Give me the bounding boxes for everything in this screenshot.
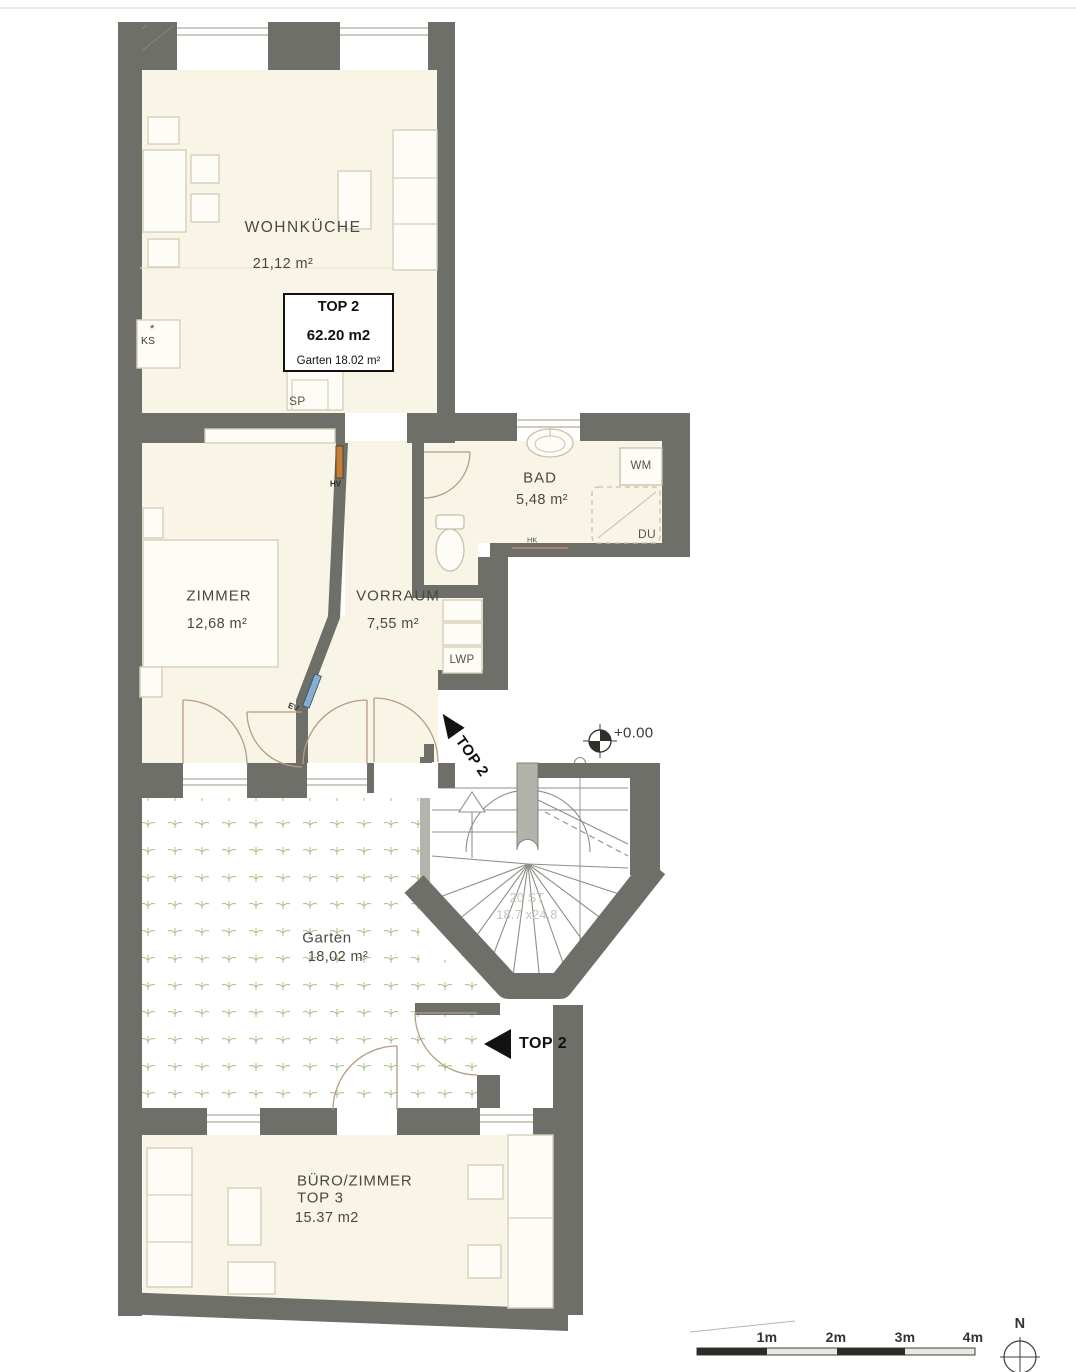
unit-box-area: 62.20 m2 xyxy=(287,327,390,344)
room-label-garten: Garten xyxy=(302,930,351,947)
compass-north-label: N xyxy=(1015,1316,1026,1332)
room-label-buero: BÜRO/ZIMMER xyxy=(297,1173,412,1190)
du-label: DU xyxy=(638,527,656,541)
floor-plan-canvas: WOHNKÜCHE 21,12 m² TOP 2 62.20 m2 Garten… xyxy=(0,0,1076,1372)
unit-box-title: TOP 2 xyxy=(287,299,390,315)
room-area-zimmer: 12,68 m² xyxy=(187,616,247,632)
room-area-garten: 18,02 m² xyxy=(308,949,368,965)
room-label-vorraum: VORRAUM xyxy=(356,588,440,605)
floor-plan-drawing xyxy=(0,0,1076,1372)
scale-label-2m: 2m xyxy=(826,1329,847,1345)
scale-label-4m: 4m xyxy=(963,1329,984,1345)
level-marker-label: +0.00 xyxy=(614,725,653,742)
hk-label: HK xyxy=(527,536,537,545)
entrance-arrow-lower-label: TOP 2 xyxy=(519,1035,567,1053)
unit-info-box: TOP 2 62.20 m2 Garten 18.02 m² xyxy=(283,293,394,372)
toilet xyxy=(436,529,464,571)
scale-bar xyxy=(697,1348,975,1355)
level-marker xyxy=(583,724,617,758)
room-area-wohnkueche: 21,12 m² xyxy=(253,256,313,272)
room-label-wohnkueche: WOHNKÜCHE xyxy=(245,219,362,237)
unit-box-garten: Garten 18.02 m² xyxy=(287,355,390,367)
unit-label-top3: TOP 3 xyxy=(297,1190,344,1207)
entrance-arrow-lower-icon xyxy=(484,1029,511,1059)
scale-label-3m: 3m xyxy=(895,1329,916,1345)
sp-label: SP xyxy=(289,394,306,408)
compass xyxy=(1000,1337,1040,1372)
ks-asterisk: * xyxy=(150,323,154,335)
stair-dimension-label: 18.7 x24.8 xyxy=(496,908,557,922)
stair-steps-label: 20 ST xyxy=(510,891,545,905)
toilet-tank xyxy=(436,515,464,529)
entrance-arrow-lower: TOP 2 xyxy=(484,1029,567,1059)
ks-label: KS xyxy=(141,335,155,347)
room-area-vorraum: 7,55 m² xyxy=(367,616,419,632)
hv-box xyxy=(336,446,343,478)
room-label-zimmer: ZIMMER xyxy=(186,588,251,605)
scale-label-1m: 1m xyxy=(757,1329,778,1345)
room-area-buero: 15.37 m2 xyxy=(295,1210,359,1226)
lwp-label: LWP xyxy=(450,654,475,666)
wm-label: WM xyxy=(630,460,651,472)
room-area-bad: 5,48 m² xyxy=(516,492,568,508)
hv-label: HV xyxy=(330,480,341,489)
room-label-bad: BAD xyxy=(523,470,557,487)
